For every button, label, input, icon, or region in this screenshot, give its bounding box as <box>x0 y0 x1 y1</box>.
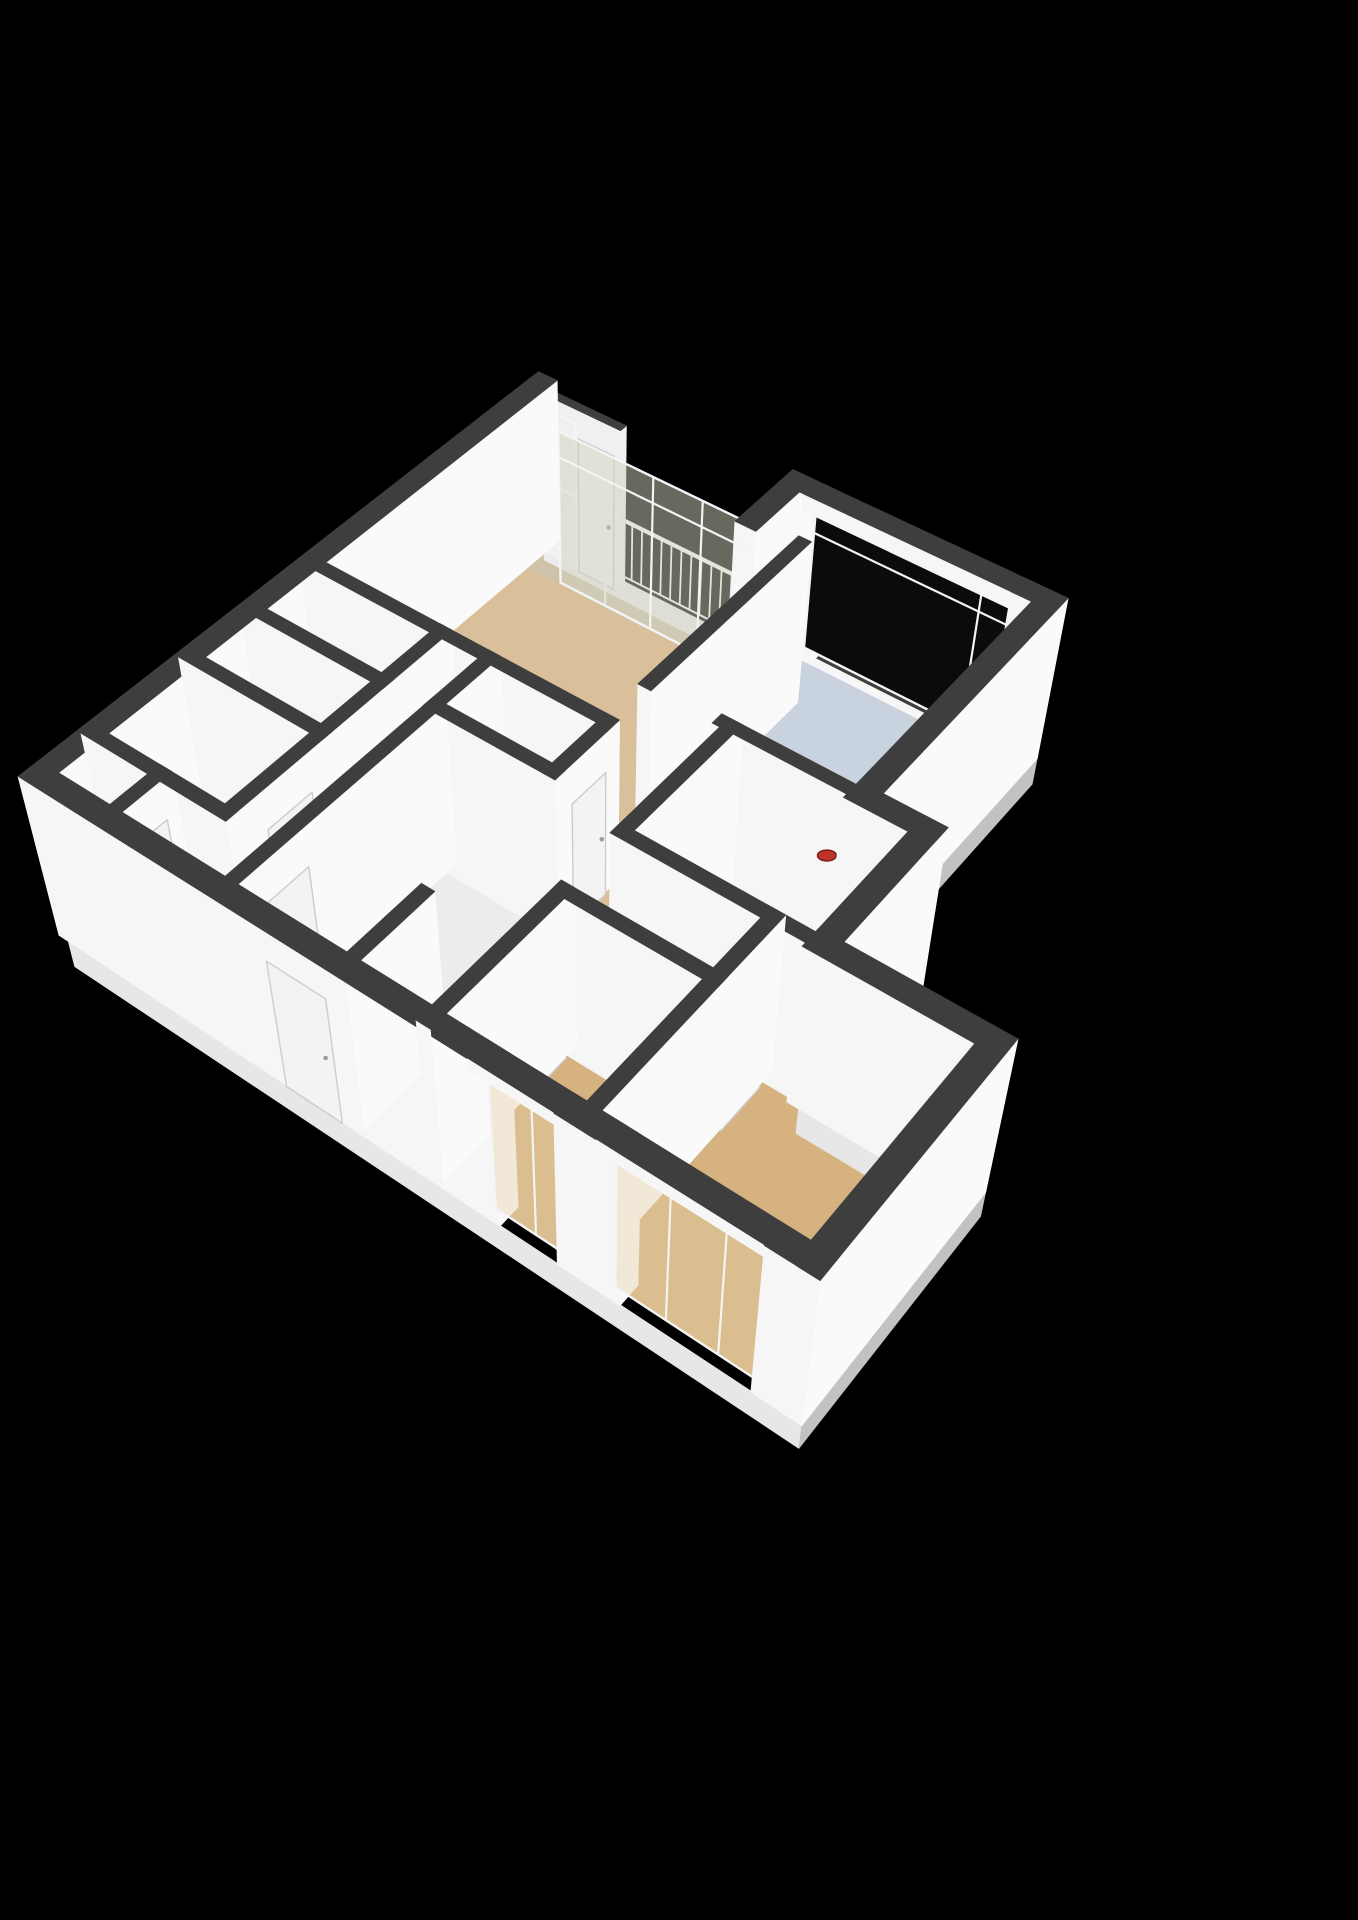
entry-door-handle <box>323 1056 328 1061</box>
floorplan-svg <box>0 0 1358 1920</box>
cooktop-burner <box>818 850 837 861</box>
floorplan-3d-render <box>0 0 1358 1920</box>
wc-door-handle <box>600 837 605 842</box>
